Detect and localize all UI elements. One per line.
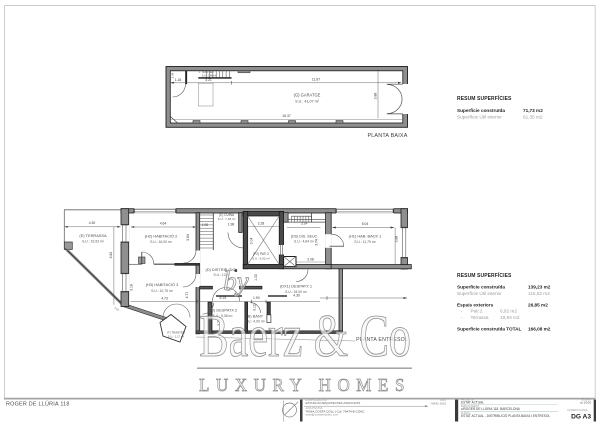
svg-text:c/ROGER DE LLÚRIA 118. BARCELO: c/ROGER DE LLÚRIA 118. BARCELONA [461,406,521,411]
svg-text:139,23 m2: 139,23 m2 [528,285,551,290]
svg-text:16.37: 16.37 [282,114,291,118]
svg-text:3.21: 3.21 [205,78,212,82]
svg-text:71,73 m2: 71,73 m2 [523,108,543,113]
svg-text:(G) GARATGE: (G) GARATGE [294,93,321,98]
svg-text:1.98: 1.98 [228,222,235,226]
svg-text:Pati 2: Pati 2 [471,309,483,314]
svg-text:S.U.: 1,17 m²: S.U.: 1,17 m² [168,335,185,339]
svg-text:RESUM SUPERFÍCIES: RESUM SUPERFÍCIES [457,271,512,279]
svg-text:4.30: 4.30 [89,221,96,225]
svg-text:RESUM SUPERFÍCIES: RESUM SUPERFÍCIES [457,94,512,102]
svg-text:5.04: 5.04 [362,222,369,226]
svg-text:3.88: 3.88 [395,236,399,243]
svg-text:4.73: 4.73 [161,296,168,300]
svg-text:(DS) DIS. SEUC: (DS) DIS. SEUC [291,234,318,238]
svg-text:S.U.: 10,75 m²: S.U.: 10,75 m² [151,289,174,293]
svg-text:1.08: 1.08 [201,223,208,227]
svg-text:by: by [223,266,249,296]
svg-text:1. TRASTER: 1. TRASTER [199,70,214,74]
svg-text:Superfície Útil interior: Superfície Útil interior [457,290,502,296]
svg-text:Superfície construïda TOTAL: Superfície construïda TOTAL [457,327,522,332]
svg-text:(H1) HAB. BACK 1: (H1) HAB. BACK 1 [349,234,382,239]
svg-text:6.82: 6.82 [109,252,113,259]
svg-text:3.04: 3.04 [250,238,254,245]
svg-text:(E) TERRASSA: (E) TERRASSA [79,233,107,238]
svg-text:(P2) PATI 2: (P2) PATI 2 [253,252,269,256]
svg-text:Superfície Útil interior: Superfície Útil interior [457,114,502,120]
svg-text:(H3) HABITACIÓ 3: (H3) HABITACIÓ 3 [146,282,179,287]
svg-text:26,85 m2: 26,85 m2 [528,302,548,307]
svg-text:S.U.: 19,93 m²: S.U.: 19,93 m² [82,239,105,243]
svg-text:2.08: 2.08 [307,257,314,261]
svg-text:61,35 m2: 61,35 m2 [523,115,543,120]
svg-text:S.U.: 11,79 m²: S.U.: 11,79 m² [354,240,376,244]
svg-text:S.U.: 4,84 m²: S.U.: 4,84 m² [294,239,315,243]
svg-text:3.88: 3.88 [374,93,378,100]
svg-text:ESTAT ACTUAL - DISTRIBUCIÓ PLA: ESTAT ACTUAL - DISTRIBUCIÓ PLANTA BAIXA … [461,413,550,418]
svg-text:ESTUDI 03 ARQUITECTES ASSOCIAT: ESTUDI 03 ARQUITECTES ASSOCIATS [306,401,361,405]
svg-text:Superfície construïda: Superfície construïda [457,285,505,290]
svg-text:4.71: 4.71 [185,292,189,299]
svg-text:Superfície construïda: Superfície construïda [457,108,505,113]
svg-text:1.90: 1.90 [253,296,260,300]
svg-text:S.U.: 41,07 m²: S.U.: 41,07 m² [295,100,320,104]
svg-text:NÚMERO PLÀNOL: NÚMERO PLÀNOL [567,409,588,412]
svg-text:LUXURY HOMES: LUXURY HOMES [199,375,411,395]
svg-text:DG A3: DG A3 [571,414,591,421]
svg-text:19,93 m2: 19,93 m2 [500,315,520,320]
svg-text:3.74: 3.74 [314,239,318,246]
svg-text:- MAIG 2016: - MAIG 2016 [430,401,447,405]
svg-text:1.33: 1.33 [254,274,258,281]
svg-text:1.18: 1.18 [175,78,182,82]
svg-text:3.84: 3.84 [186,234,190,241]
svg-text:Espais exteriors: Espais exteriors [457,302,494,307]
svg-text:6,92 m2: 6,92 m2 [500,309,517,314]
svg-text:3.14: 3.14 [301,222,308,226]
svg-text:2.43: 2.43 [171,72,175,78]
svg-text:S.U.: 16,00 m²: S.U.: 16,00 m² [150,240,173,244]
svg-text:4.64: 4.64 [160,221,167,225]
svg-text:a) 1/100: a) 1/100 [580,401,591,405]
svg-text:(DX1) DESPATX 1: (DX1) DESPATX 1 [280,283,312,288]
svg-text:S.U.: 7,18 m²: S.U.: 7,18 m² [218,217,236,221]
svg-text:ROGER DE LLÚRIA 118: ROGER DE LLÚRIA 118 [6,400,70,407]
svg-text:(H2) HABITACIÓ 2: (H2) HABITACIÓ 2 [145,234,178,239]
svg-text:Terrassa: Terrassa [471,315,489,320]
svg-text:11.87: 11.87 [312,77,320,81]
svg-text:2.28: 2.28 [258,221,265,225]
svg-text:115,02 m2: 115,02 m2 [528,291,550,296]
svg-text:Baerz & Co: Baerz & Co [199,303,411,369]
svg-text:S.U: 2,48 m²: S.U: 2,48 m² [202,74,217,78]
svg-text:166,08 m2: 166,08 m2 [528,327,551,332]
svg-text:4.30: 4.30 [293,293,300,297]
svg-text:3.18: 3.18 [130,284,134,291]
svg-text:S.U.: 6,92 m²: S.U.: 6,92 m² [252,257,270,261]
svg-text:tania@costamasdeu.com: tania@costamasdeu.com [306,413,339,417]
svg-text:PLANTA BAIXA: PLANTA BAIXA [367,133,407,139]
svg-text:5.15: 5.15 [219,296,226,300]
svg-text:ESTAT ACTUAL: ESTAT ACTUAL [461,400,484,404]
